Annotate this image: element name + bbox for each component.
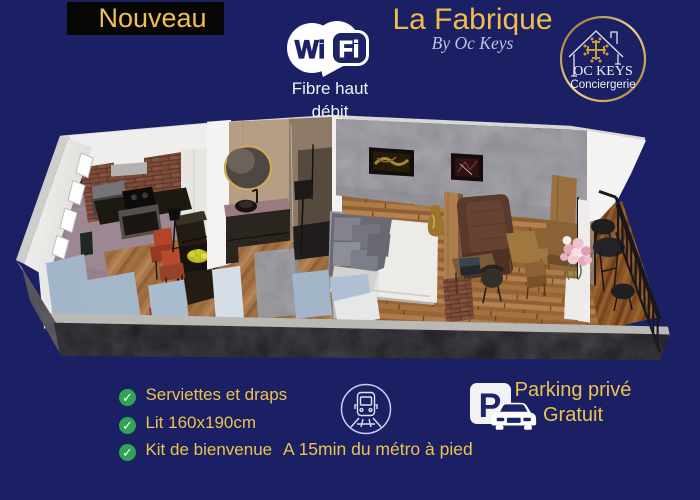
svg-text:Conciergerie: Conciergerie xyxy=(570,79,635,91)
svg-text:OC KEYS: OC KEYS xyxy=(573,64,633,79)
svg-text:Wi: Wi xyxy=(295,36,325,64)
svg-text:Fi: Fi xyxy=(339,36,359,62)
